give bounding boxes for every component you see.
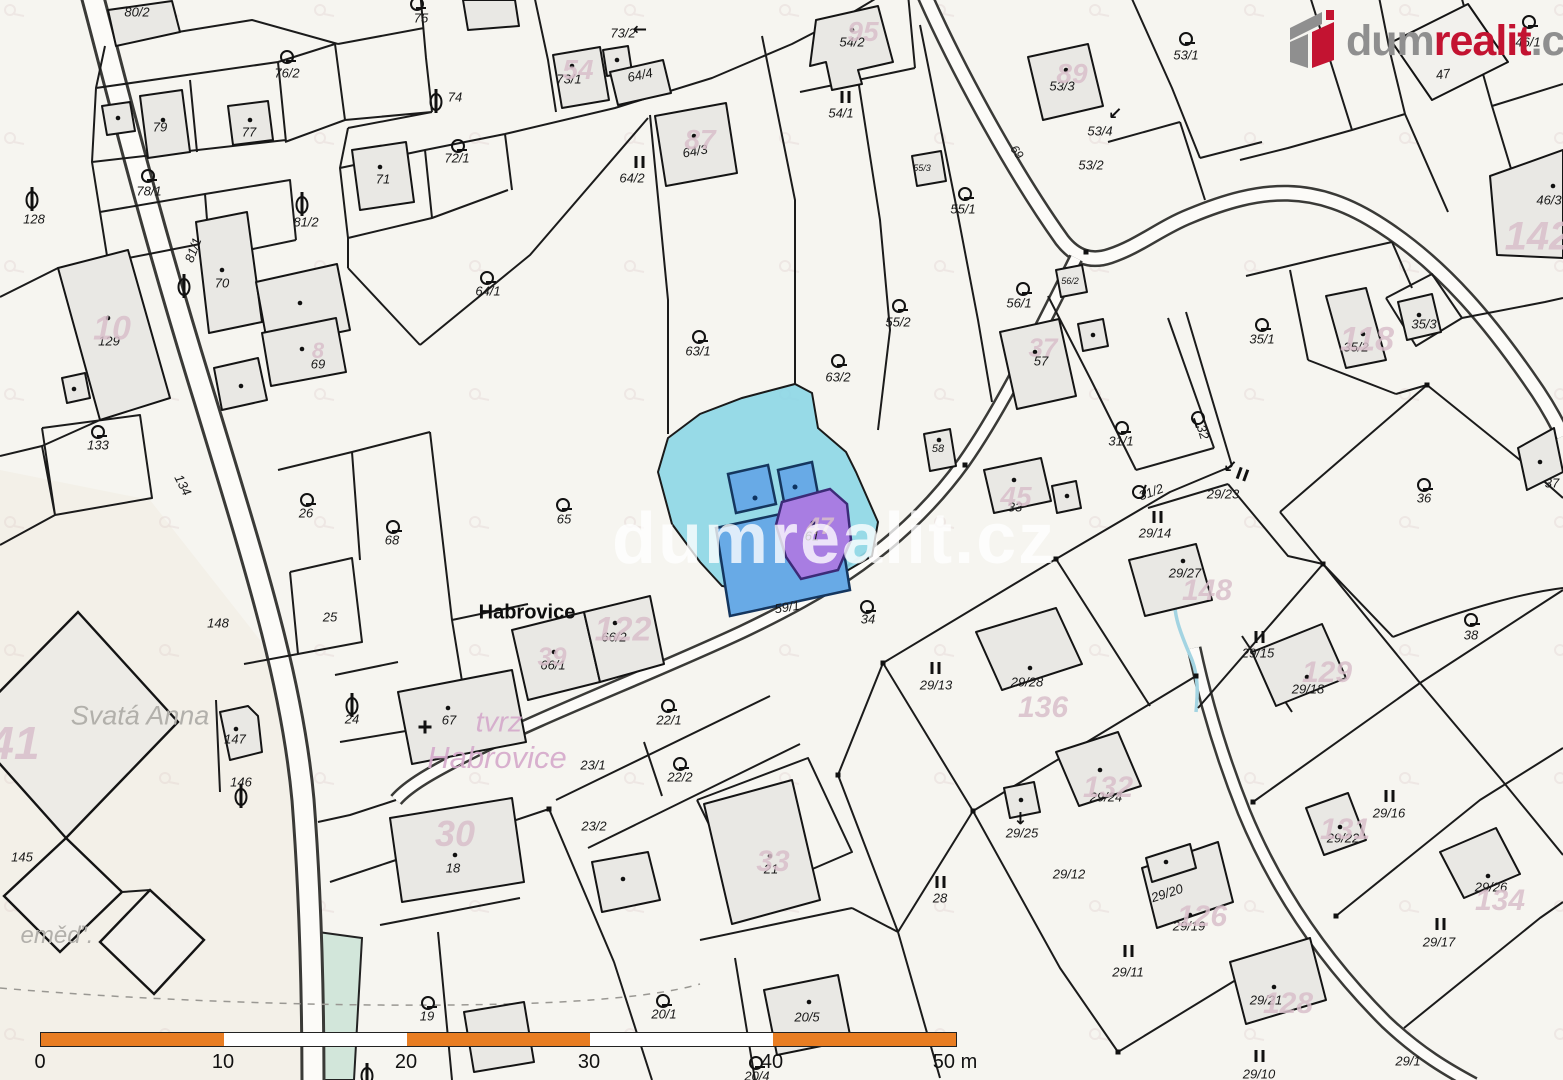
map-canvas: [0, 0, 1563, 1080]
scale-tick-label: 0: [34, 1051, 45, 1074]
scale-tick-label: 30: [578, 1051, 600, 1074]
scale-segment: [773, 1033, 956, 1046]
dumrealit-logo-icon: [1288, 10, 1338, 72]
logo-text-dum: dum: [1346, 17, 1434, 65]
highlighted-building-a: [728, 465, 776, 513]
scale-tick-label: 20: [395, 1051, 417, 1074]
logo-text: dumrealit.cz: [1346, 17, 1563, 66]
dumrealit-logo[interactable]: dumrealit.cz: [1288, 10, 1563, 72]
scale-tick-label: 10: [212, 1051, 234, 1074]
cadastral-map[interactable]: 80/276/2797778/112881/281/1707172/174757…: [0, 0, 1563, 1080]
scale-segment: [224, 1033, 407, 1046]
scale-ticks: 01020304050 m: [40, 1051, 957, 1073]
scale-tick-label: 50 m: [933, 1051, 977, 1074]
scale-segment: [590, 1033, 773, 1046]
scale-segment: [407, 1033, 590, 1046]
scale-bar: 01020304050 m: [40, 1032, 957, 1073]
scale-tick-label: 40: [761, 1051, 783, 1074]
logo-text-cz: .cz: [1531, 17, 1563, 65]
scale-segment: [41, 1033, 224, 1046]
logo-text-realit: realit: [1434, 17, 1531, 65]
scale-bar-segments: [40, 1032, 957, 1047]
